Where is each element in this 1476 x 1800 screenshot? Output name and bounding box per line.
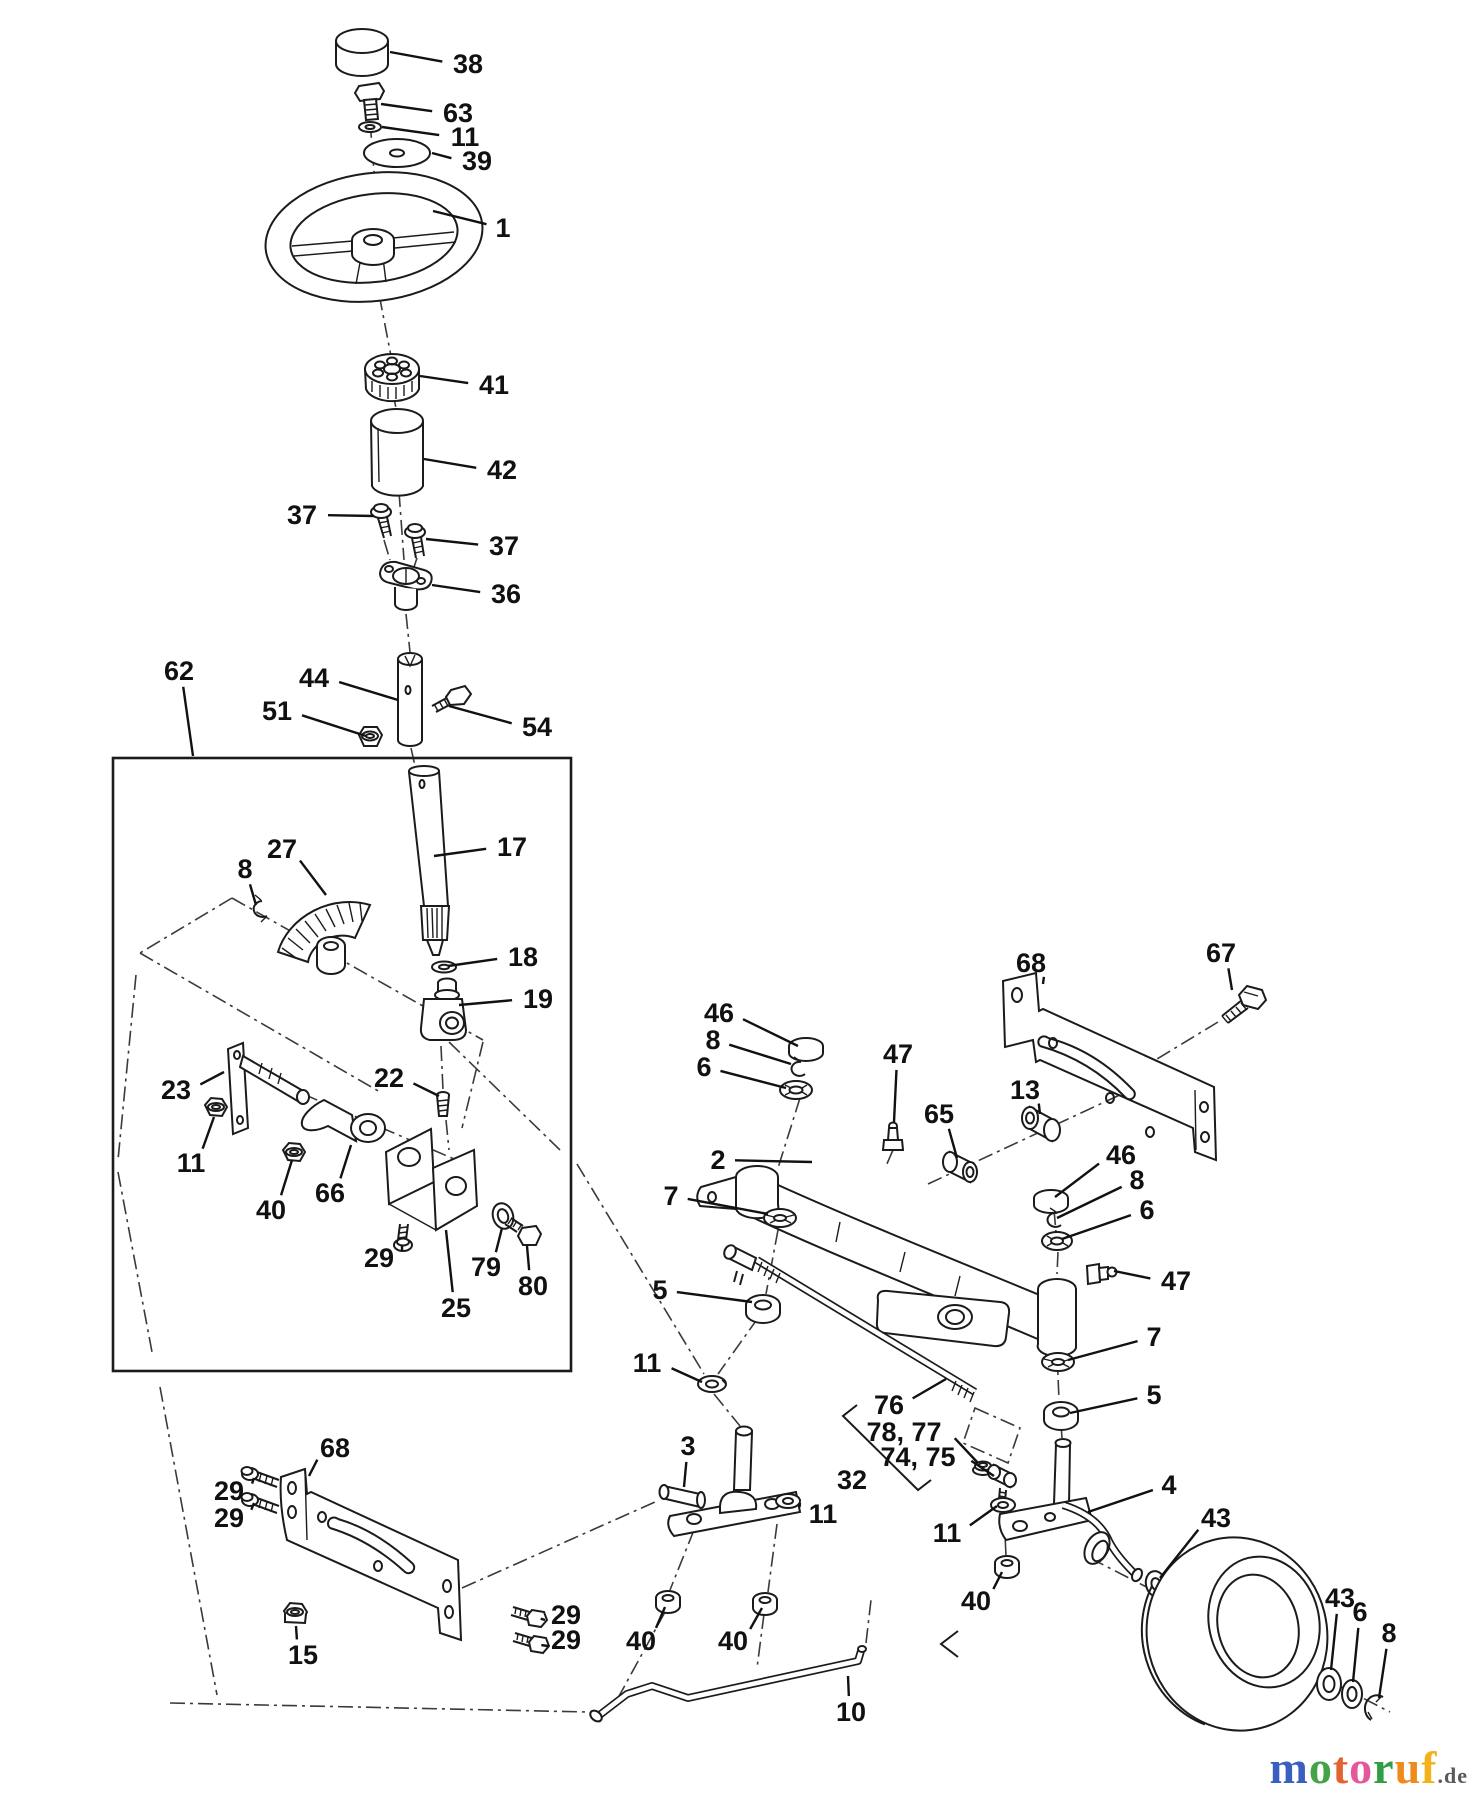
leader-line-11 (382, 127, 439, 135)
leader-line-25 (446, 1230, 453, 1292)
part-label-8: 8 (1129, 1165, 1144, 1195)
leader-line-6 (1353, 1628, 1358, 1682)
part-washer-43-outer (1317, 1668, 1341, 1700)
motoruf-logo: motoruf.de (1270, 1741, 1469, 1794)
leader-line-47 (1114, 1271, 1150, 1278)
part-grease-fitting-47-left (883, 1123, 903, 1151)
part-washer-18 (432, 962, 456, 973)
part-front-wheel (1126, 1518, 1348, 1750)
leader-line-7 (1068, 1341, 1138, 1360)
part-e-clip-8-box (254, 895, 267, 922)
part-label-79: 79 (471, 1252, 501, 1282)
leader-line-44 (339, 682, 398, 700)
part-washer-7-left (764, 1209, 796, 1227)
part-label-6: 6 (1139, 1195, 1154, 1225)
part-label-18: 18 (508, 942, 538, 972)
part-label-40: 40 (718, 1626, 748, 1656)
part-label-1: 1 (495, 213, 510, 243)
part-label-7: 7 (1146, 1322, 1161, 1352)
leader-line-6 (720, 1071, 786, 1088)
part-screw-29-left-top (242, 1467, 280, 1487)
part-steering-wheel (258, 160, 490, 314)
leader-line-8 (250, 884, 256, 905)
part-grease-fitting-47-right (1087, 1264, 1117, 1284)
part-label-37: 37 (287, 500, 317, 530)
leader-line-62 (183, 687, 193, 756)
part-label-11: 11 (933, 1518, 962, 1548)
part-nut-15 (284, 1603, 307, 1623)
part-label-5: 5 (652, 1275, 667, 1305)
logo-suffix: .de (1438, 1763, 1469, 1788)
part-label-8: 8 (237, 854, 252, 884)
part-bolt-54 (432, 686, 471, 712)
part-washer-7-right (1042, 1353, 1074, 1371)
group-chevron-10 (941, 1631, 958, 1657)
logo-letter: m (1270, 1742, 1309, 1793)
leader-line-43 (1331, 1614, 1337, 1670)
leader-line-15 (296, 1626, 297, 1639)
part-label-29: 29 (551, 1625, 581, 1655)
part-label-8: 8 (705, 1025, 720, 1055)
part-e-clip-8-wheel (1365, 1695, 1383, 1720)
leader-line-66 (340, 1145, 351, 1178)
logo-letter: f (1421, 1742, 1437, 1793)
part-nut-11-box (205, 1098, 227, 1116)
leader-line-23 (200, 1072, 224, 1084)
leader-line-8 (1379, 1649, 1386, 1698)
part-label-2: 2 (710, 1145, 725, 1175)
part-label-29: 29 (364, 1243, 394, 1273)
leader-line-5 (1070, 1398, 1137, 1413)
part-label-65: 65 (924, 1099, 954, 1129)
part-splined-insert-41 (365, 354, 419, 401)
part-nut-40-right (995, 1556, 1019, 1578)
part-label-38: 38 (453, 49, 483, 79)
part-washer-6-wheel (1342, 1680, 1362, 1708)
part-label-29: 29 (214, 1476, 244, 1506)
part-label-11: 11 (633, 1348, 662, 1378)
part-label-46: 46 (704, 998, 734, 1028)
leader-line-80 (527, 1246, 529, 1270)
part-label-7: 7 (663, 1181, 678, 1211)
leader-line-37 (426, 539, 478, 545)
part-label-23: 23 (161, 1075, 191, 1105)
leader-line-46 (743, 1019, 798, 1046)
leader-line-6 (1062, 1215, 1131, 1239)
logo-letter: t (1333, 1742, 1349, 1793)
part-washer-79 (489, 1201, 516, 1232)
leader-line-63 (381, 104, 432, 111)
part-washer-11-mid (698, 1376, 726, 1392)
leader-line-18 (448, 959, 497, 966)
part-washer-11-tie-rod (991, 1498, 1015, 1512)
part-washer-5-left (746, 1295, 780, 1323)
leader-line-67 (1228, 968, 1232, 990)
part-label-10: 10 (836, 1697, 866, 1727)
part-drag-link-10 (588, 1646, 866, 1724)
part-label-40: 40 (626, 1626, 656, 1656)
part-label-4: 4 (1161, 1470, 1176, 1500)
part-label-68: 68 (320, 1433, 350, 1463)
leader-line-5 (677, 1292, 752, 1302)
part-label-40: 40 (256, 1195, 286, 1225)
part-label-22: 22 (374, 1063, 404, 1093)
leader-line-13 (1039, 1104, 1040, 1114)
part-label-27: 27 (267, 834, 297, 864)
exploded-parts-diagram: 3863113914142373736624451542781718192322… (0, 0, 1476, 1800)
part-shaft-bracket-23 (228, 1043, 309, 1134)
part-label-15: 15 (288, 1640, 318, 1670)
leader-line-79 (496, 1228, 502, 1252)
part-nut-40-center (753, 1593, 777, 1615)
diagram-page: 3863113914142373736624451542781718192322… (0, 0, 1476, 1800)
construction-lines (118, 95, 1390, 1712)
part-washer-11-spindle-3 (776, 1494, 800, 1508)
part-bolt-67 (1222, 986, 1266, 1023)
part-label-47: 47 (883, 1039, 913, 1069)
part-screw-29-right-top (511, 1607, 547, 1627)
part-label-67: 67 (1206, 938, 1236, 968)
part-label-41: 41 (479, 370, 509, 400)
part-label-32: 32 (837, 1465, 867, 1495)
part-label-68: 68 (1016, 948, 1046, 978)
leader-line-4 (1088, 1490, 1153, 1512)
part-bracket-25 (386, 1129, 477, 1230)
leader-line-42 (424, 459, 476, 468)
leader-line-76 (913, 1379, 946, 1398)
part-label-13: 13 (1010, 1075, 1040, 1105)
part-label-43: 43 (1201, 1503, 1231, 1533)
part-flange-bushing-36 (380, 562, 432, 610)
part-label-51: 51 (262, 696, 292, 726)
part-label-6: 6 (1352, 1597, 1367, 1627)
part-steering-shaft-17 (409, 766, 449, 955)
logo-letter: o (1309, 1742, 1333, 1793)
part-bushing-13 (1022, 1107, 1060, 1141)
part-label-42: 42 (487, 455, 517, 485)
leader-line-19 (459, 1000, 512, 1005)
logo-letter: u (1395, 1742, 1422, 1793)
leader-line-36 (432, 585, 480, 592)
part-label-39: 39 (462, 146, 492, 176)
leader-line-29 (541, 1645, 548, 1646)
logo-letter: r (1373, 1742, 1394, 1793)
part-screw-37-right (405, 524, 425, 558)
part-bushing-66 (302, 1100, 385, 1142)
part-nut-40-box (283, 1143, 305, 1161)
leader-line-11 (203, 1117, 214, 1149)
leader-line-27 (300, 861, 326, 895)
part-label-19: 19 (523, 984, 553, 1014)
leader-line-51 (302, 715, 366, 736)
part-gear-joint-19 (421, 979, 466, 1041)
part-bushing-74-75 (988, 1465, 1016, 1502)
leader-line-68 (309, 1460, 317, 1476)
part-steering-wheel-cap (336, 29, 388, 76)
part-nut-51 (359, 727, 382, 746)
part-label-66: 66 (315, 1178, 345, 1208)
leader-line-47 (894, 1070, 896, 1122)
part-label-29: 29 (214, 1503, 244, 1533)
part-label-80: 80 (518, 1271, 548, 1301)
leader-line-54 (449, 706, 512, 723)
leader-line-3 (684, 1462, 686, 1487)
part-label-25: 25 (441, 1293, 471, 1323)
part-label-17: 17 (497, 832, 527, 862)
leader-line-22 (413, 1083, 439, 1096)
leader-line-40 (281, 1160, 292, 1195)
part-label-44: 44 (299, 663, 329, 693)
part-shaft-tube-44 (398, 653, 422, 746)
part-label-62: 62 (164, 656, 194, 686)
part-label-6: 6 (696, 1052, 711, 1082)
leader-line-11 (672, 1368, 702, 1382)
part-label-76: 76 (874, 1390, 904, 1420)
leader-line-39 (432, 153, 451, 158)
part-bolt-63 (355, 83, 384, 120)
part-washer-6-right (1042, 1232, 1072, 1250)
part-screw-29-right-bottom (513, 1633, 549, 1653)
part-screw-37-left (371, 504, 391, 538)
part-sleeve-42 (371, 409, 423, 496)
part-screw-29-left-bottom (242, 1493, 280, 1513)
leader-line-37 (328, 515, 374, 516)
part-axle-bracket-68-left (281, 1469, 461, 1640)
part-label-36: 36 (491, 579, 521, 609)
part-label-43: 43 (1325, 1583, 1355, 1613)
part-cap-46-right (1034, 1190, 1068, 1213)
part-bushing-65 (943, 1152, 977, 1182)
leader-line-38 (390, 52, 442, 62)
part-label-5: 5 (1146, 1380, 1161, 1410)
part-spindle-4 (999, 1439, 1144, 1583)
part-washer-5-right (1044, 1402, 1078, 1430)
part-label-11: 11 (809, 1499, 838, 1529)
part-washer-11-top (359, 122, 381, 132)
leader-line-78-77 (955, 1438, 978, 1463)
part-label-54: 54 (522, 712, 552, 742)
part-washer-6-left (780, 1081, 812, 1099)
part-washer-39 (364, 139, 430, 167)
logo-letter: o (1349, 1742, 1373, 1793)
part-nut-40-left (656, 1591, 680, 1613)
leader-line-8 (729, 1045, 791, 1064)
part-label-40: 40 (961, 1586, 991, 1616)
part-label-8: 8 (1381, 1618, 1396, 1648)
part-label-47: 47 (1161, 1266, 1191, 1296)
leader-line-10 (848, 1676, 849, 1696)
leader-line-11 (970, 1506, 997, 1525)
part-label-11: 11 (177, 1148, 206, 1178)
part-label-37: 37 (489, 531, 519, 561)
part-label-74-75: 74, 75 (880, 1442, 955, 1472)
part-label-3: 3 (680, 1431, 695, 1461)
leader-line-46 (1055, 1164, 1099, 1197)
leader-line-41 (420, 376, 468, 383)
part-sector-gear-27 (278, 902, 370, 974)
leader-line-29 (541, 1619, 545, 1620)
leader-line-2 (735, 1160, 812, 1162)
